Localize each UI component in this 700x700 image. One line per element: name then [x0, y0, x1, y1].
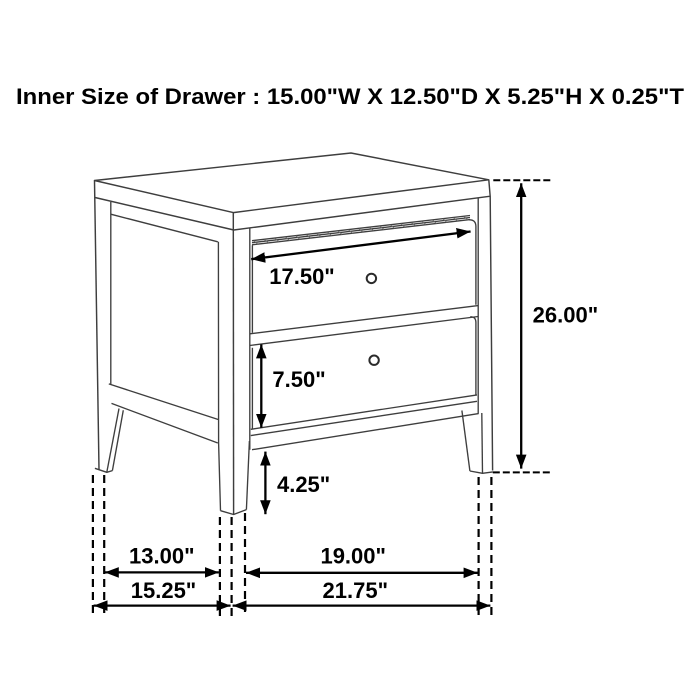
svg-text:17.50": 17.50"	[269, 264, 334, 289]
svg-text:19.00": 19.00"	[320, 544, 385, 569]
svg-text:4.25": 4.25"	[277, 472, 330, 497]
svg-text:13.00": 13.00"	[129, 544, 194, 569]
svg-text:7.50": 7.50"	[272, 367, 325, 392]
svg-text:15.25": 15.25"	[131, 578, 196, 603]
svg-text:Inner Size of Drawer : 15.00"W: Inner Size of Drawer : 15.00"W X 12.50"D…	[16, 84, 684, 109]
svg-text:26.00": 26.00"	[533, 302, 598, 327]
svg-text:21.75": 21.75"	[323, 578, 388, 603]
